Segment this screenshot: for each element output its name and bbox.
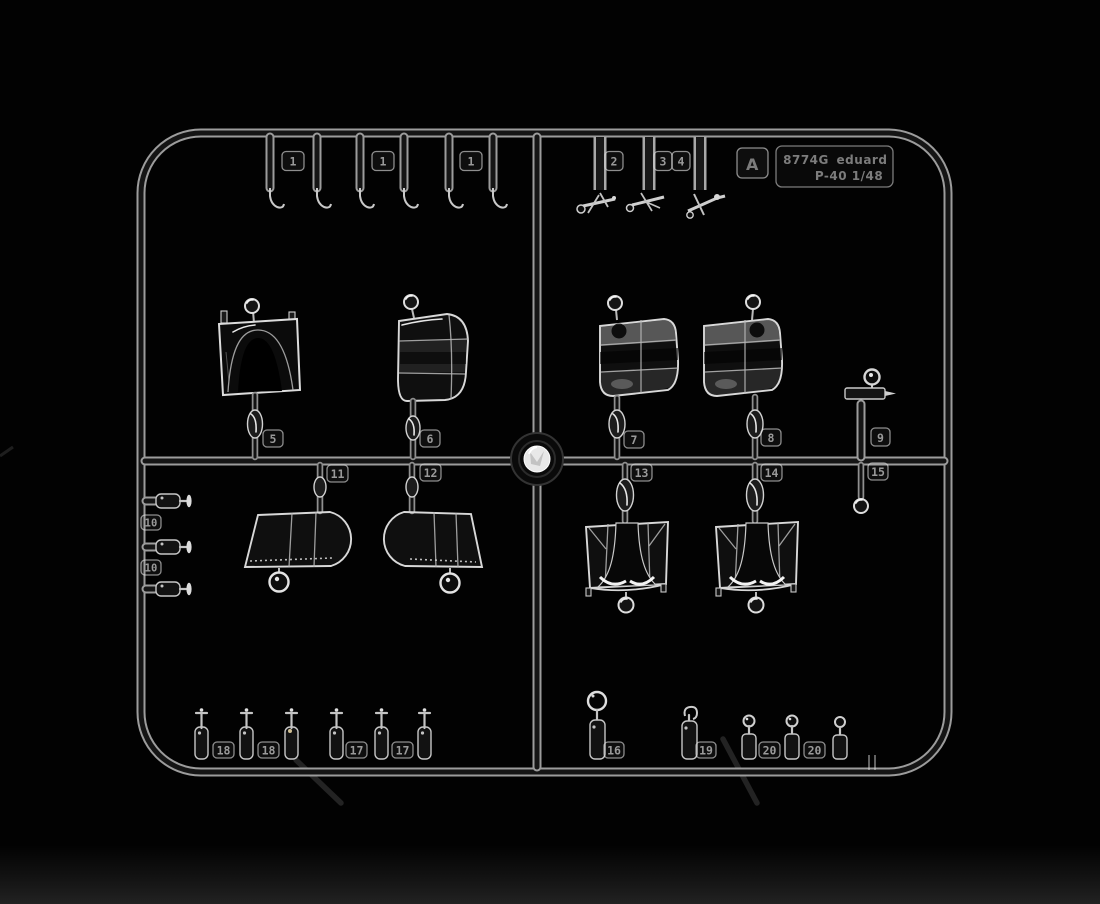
brand-name: eduard — [837, 153, 888, 167]
part-tag-19: 19 — [696, 742, 716, 758]
sight-ring — [627, 205, 634, 212]
center-injection-point — [511, 433, 563, 485]
top-stub-hooks — [270, 137, 507, 208]
pin-head — [186, 495, 191, 507]
part-bottle-pin — [330, 708, 343, 759]
bottom-light-band — [0, 845, 1100, 904]
pin-glint — [684, 726, 687, 729]
part-tag-6: 6 — [420, 430, 440, 447]
gate-blob — [617, 479, 634, 511]
part-tag-12: 12 — [420, 464, 441, 481]
gunsight-parts-group: 2 3 4 — [577, 137, 725, 218]
part-gunsight-2 — [577, 193, 616, 213]
tag-number: 6 — [427, 432, 434, 446]
pin-body — [375, 727, 388, 759]
part-tag-1c: 1 — [460, 152, 482, 171]
part-tag-11: 11 — [327, 465, 348, 482]
canopy-blob — [611, 379, 633, 389]
part-pin-10c — [146, 582, 192, 596]
gate-blob — [406, 477, 418, 497]
part-tag-20a: 20 — [759, 742, 780, 758]
part-tag-8: 8 — [761, 429, 781, 446]
gate-blob — [609, 410, 625, 438]
sight-dot — [612, 196, 616, 200]
pin-glint — [161, 585, 164, 588]
part-tag-7: 7 — [624, 431, 644, 448]
gate-blob — [406, 416, 420, 440]
part-ball-pin-15 — [854, 465, 868, 513]
part-tag-17b: 17 — [392, 742, 413, 758]
lens-ring-dot — [275, 577, 279, 581]
part-bottle-pin — [240, 708, 253, 759]
tag-number: 17 — [396, 744, 410, 758]
hook-top — [685, 707, 697, 719]
ring-glint — [592, 695, 595, 698]
canopy-shadow-stripe — [400, 352, 466, 364]
part-tag-18b: 18 — [258, 742, 279, 758]
bottom-pins-left-group: 18 18 17 17 — [195, 708, 431, 759]
tag-number: 18 — [217, 744, 231, 758]
window-body — [245, 512, 351, 567]
lens-ball — [404, 295, 418, 309]
part-gunsight-4 — [687, 194, 725, 218]
part-tag-5: 5 — [263, 430, 283, 447]
sight-ring — [577, 205, 585, 213]
gate-blob — [747, 479, 764, 511]
tag-number: 10 — [145, 563, 158, 575]
tag-number: 1 — [380, 155, 387, 169]
scale-line: P-40 1/48 — [815, 169, 883, 183]
marking-label: 8774G eduard P-40 1/48 — [776, 146, 893, 187]
part-ball-pin-end — [833, 717, 847, 759]
tag-number: 8 — [768, 431, 775, 445]
part-tag-13: 13 — [631, 464, 652, 481]
injection-crystal — [524, 446, 550, 472]
pin-body — [833, 735, 847, 759]
pin-body — [195, 727, 208, 759]
canopy-dark-spot — [612, 324, 627, 339]
part-hook-pin-19 — [682, 707, 697, 759]
tag-number: 17 — [350, 744, 364, 758]
lens-ball — [854, 499, 868, 513]
frame-post — [221, 311, 227, 323]
tag-number: 15 — [871, 465, 885, 479]
pin-body — [785, 734, 799, 759]
tag-number: 9 — [877, 431, 884, 445]
lens-ball — [608, 296, 622, 310]
lens-ring — [270, 573, 289, 592]
pin-knob — [200, 708, 204, 712]
pin-body — [330, 727, 343, 759]
part-pin-10b — [146, 540, 192, 554]
pin-body — [682, 721, 697, 759]
part-tag-10b: 10 — [141, 560, 161, 575]
pin-glint — [243, 731, 246, 734]
part-tag-15: 15 — [868, 463, 888, 480]
part-tag-1a: 1 — [282, 152, 304, 171]
lens-ball — [746, 295, 760, 309]
part-tag-16: 16 — [604, 742, 624, 758]
part-quarter-window-11 — [245, 465, 351, 592]
part-windscreen-5 — [219, 299, 300, 457]
pin-glint — [198, 731, 201, 734]
canopy-blob — [715, 379, 737, 389]
sight-bar — [845, 388, 885, 399]
sight-ring — [865, 370, 880, 385]
part-bottle-pin — [285, 708, 298, 759]
dark-stick-left — [296, 760, 341, 803]
gate-blob — [314, 477, 326, 497]
part-tag-9: 9 — [871, 428, 890, 446]
tag-number: 19 — [699, 744, 713, 758]
part-gunsight-3 — [627, 193, 665, 212]
pin-glint — [161, 543, 164, 546]
tag-number: 16 — [607, 744, 621, 758]
tag-number: 20 — [808, 744, 822, 758]
part-tag-18a: 18 — [213, 742, 234, 758]
ball-glint — [789, 718, 792, 721]
ball-glint — [746, 718, 749, 721]
pin-body — [156, 494, 180, 508]
tag-number: 1 — [290, 155, 297, 169]
tag-number: 1 — [468, 155, 475, 169]
ball-stem — [412, 309, 414, 318]
tag-number: 4 — [678, 155, 685, 169]
part-pin-10a — [146, 494, 192, 508]
part-ball-pin-20b — [785, 716, 799, 760]
pin-body — [156, 540, 180, 554]
sight-disc — [714, 194, 720, 200]
part-bottle-pin — [195, 708, 208, 759]
part-ball-pin-20a — [742, 716, 756, 760]
windscreen-foot — [661, 584, 666, 592]
lens-ball — [619, 598, 634, 613]
part-ring-pin-16 — [588, 692, 606, 759]
canopy-dark-spot — [750, 323, 765, 338]
tag-number: 10 — [145, 518, 158, 530]
part-tag-4: 4 — [672, 152, 690, 171]
part-tag-14: 14 — [761, 464, 782, 481]
lens-ball — [245, 299, 259, 313]
windscreen-foot — [791, 584, 796, 592]
pin-body — [418, 727, 431, 759]
part-tag-2: 2 — [605, 152, 623, 171]
ball-stem — [616, 310, 617, 320]
windscreen-foot — [716, 588, 721, 596]
part-windscreen-14 — [716, 465, 798, 613]
pin-parts-10-group: 10 10 — [141, 494, 192, 596]
pin-head — [186, 541, 191, 553]
gate-blob — [248, 410, 263, 438]
pin-glint — [592, 725, 595, 728]
pin-knob — [335, 708, 339, 712]
pin-glint — [378, 731, 381, 734]
pin-knob — [245, 708, 249, 712]
tag-number: 5 — [270, 432, 277, 446]
sight-body — [583, 199, 615, 206]
sprue-letter: A — [746, 155, 759, 174]
lens-ring-dot — [446, 578, 450, 582]
sprue-letter-tag: A — [737, 148, 768, 178]
part-quarter-window-12 — [384, 465, 482, 593]
top-small-parts-group: 1 1 1 — [270, 137, 507, 208]
tag-number: 3 — [660, 155, 667, 169]
pin-body — [742, 734, 756, 759]
part-tag-3: 3 — [654, 152, 672, 171]
tag-number: 14 — [765, 466, 779, 480]
pin-body — [156, 582, 180, 596]
sight-ring — [687, 212, 693, 218]
tag-number: 13 — [635, 466, 649, 480]
lens-ball — [749, 598, 764, 613]
pin-glint — [333, 731, 336, 734]
tag-number: 18 — [262, 744, 276, 758]
left-edge-smudge — [0, 447, 13, 456]
tag-number: 12 — [424, 466, 438, 480]
ring-dot — [869, 373, 873, 377]
bottom-pins-right-group: 16 19 20 20 — [588, 692, 847, 759]
pin-knob — [423, 708, 427, 712]
ball-stem — [752, 309, 753, 320]
ball-top — [744, 716, 755, 727]
lens-ring — [441, 574, 460, 593]
pin-glint-warm — [288, 729, 292, 733]
ball-top — [835, 717, 845, 727]
photo-clear-sprue: 1 1 1 2 3 4 A — [0, 0, 1100, 904]
tag-number: 11 — [331, 467, 345, 481]
pin-body — [590, 720, 605, 759]
part-tag-1b: 1 — [372, 152, 394, 171]
pin-knob — [380, 708, 384, 712]
part-bottle-pin — [375, 708, 388, 759]
ball-top — [787, 716, 798, 727]
part-windscreen-13 — [586, 465, 668, 613]
pin-knob — [290, 708, 294, 712]
sprue-illustration: 1 1 1 2 3 4 A — [0, 0, 1100, 904]
tag-number: 7 — [631, 433, 638, 447]
part-bottle-pin — [418, 708, 431, 759]
pin-glint — [421, 731, 424, 734]
ring-top — [588, 692, 606, 710]
part-tag-20b: 20 — [804, 742, 825, 758]
window-body — [384, 512, 482, 567]
pin-head — [186, 583, 191, 595]
mold-code: 8774G — [783, 153, 829, 167]
tag-number: 2 — [611, 155, 618, 169]
pin-body — [240, 727, 253, 759]
sight-pin-tip — [885, 391, 896, 396]
tag-number: 20 — [763, 744, 777, 758]
part-tag-17a: 17 — [346, 742, 367, 758]
part-tag-10a: 10 — [141, 515, 161, 530]
windscreen-foot — [586, 588, 591, 596]
pin-glint — [161, 497, 164, 500]
